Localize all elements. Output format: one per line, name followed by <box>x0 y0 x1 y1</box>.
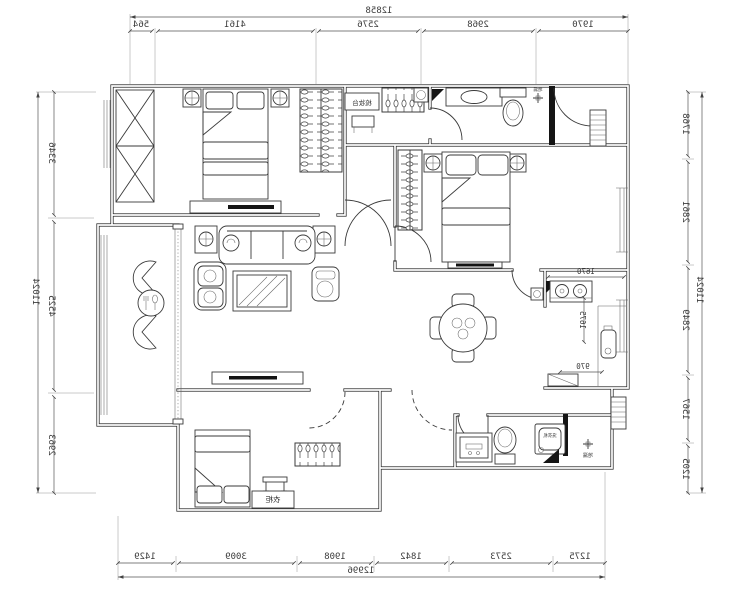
vanity-2 <box>456 433 492 462</box>
dim-right-3: 1567 <box>680 398 690 420</box>
hall-arc-1 <box>345 200 391 246</box>
living-room <box>194 226 339 384</box>
dim-kitchen-depth: 1675 <box>578 311 587 329</box>
bedroom2-window <box>616 188 628 252</box>
dim-bottom-0: 1429 <box>134 552 156 562</box>
radiator-entry <box>590 110 606 146</box>
cabinet-small <box>414 88 428 102</box>
floor-drain-bottom: 地漏 <box>583 439 593 459</box>
fan-chair <box>133 315 156 349</box>
bedroom2-door-arc <box>395 226 431 262</box>
tv-bedroom2 <box>456 264 494 267</box>
dim-right-2: 2849 <box>680 309 690 331</box>
tv <box>229 376 277 380</box>
dim-bottom-1: 3009 <box>225 552 247 562</box>
floor-plan-canvas: 12858 564 4161 2576 2968 1970 12996 1429… <box>0 0 740 592</box>
svg-text:地漏: 地漏 <box>583 452 593 459</box>
dresser-label: 梳妆台 <box>352 98 372 107</box>
dim-right-4: 1205 <box>680 458 690 480</box>
wardrobe-label: 衣柜 <box>265 494 280 504</box>
kitchen-sink <box>601 326 616 358</box>
corner-marker <box>432 89 444 101</box>
tv-bedroom1 <box>228 205 274 209</box>
dim-left-total: 11024 <box>30 278 40 305</box>
sink-small <box>531 288 543 300</box>
balcony <box>133 261 164 349</box>
dim-top-4: 1970 <box>572 20 594 30</box>
dim-kitchen-width: 1670 <box>576 267 595 276</box>
hall-arc-2 <box>345 200 391 246</box>
dim-left-2: 2963 <box>46 434 56 456</box>
radiator-utility <box>611 397 626 429</box>
sofa-3seat <box>219 226 315 264</box>
toilet-2 <box>494 427 516 464</box>
bed-bedroom2 <box>442 152 510 262</box>
bed-master <box>203 89 268 199</box>
corridor-door-arc <box>412 390 452 430</box>
dim-bottom-total: 12996 <box>347 566 374 576</box>
dim-left-1: 4525 <box>46 295 56 317</box>
dim-right-total: 11024 <box>694 276 704 303</box>
floor-drain-top: 地漏 <box>533 86 543 103</box>
solid-wall-entry <box>549 86 555 145</box>
bedroom3: 衣柜 <box>195 430 340 508</box>
dim-bottom-3: 1842 <box>400 552 422 562</box>
bedroom1 <box>116 89 342 213</box>
coffee-table <box>233 271 291 311</box>
balcony-sliding-door <box>173 224 183 424</box>
dim-top-1: 4161 <box>224 20 246 30</box>
balcony-table <box>138 290 164 316</box>
floor-plan-drawing: 12858 564 4161 2576 2968 1970 12996 1429… <box>0 0 740 592</box>
washing-machine: 洗衣机 <box>535 424 565 454</box>
dim-top-3: 2968 <box>467 20 489 30</box>
closet-hangers-bedroom3 <box>295 443 340 466</box>
bedroom3-door-arc <box>309 392 345 428</box>
dim-left-0: 3346 <box>46 142 56 164</box>
bed-bedroom3 <box>195 430 250 507</box>
bedroom1-window <box>104 100 110 168</box>
entry-door-arc <box>554 88 592 126</box>
closet-hangers-bedroom2 <box>398 150 422 230</box>
svg-text:地漏: 地漏 <box>533 86 542 93</box>
bathroom2: 洗衣机 地漏 <box>456 397 626 464</box>
balcony-window <box>101 235 107 415</box>
bathroom1: 地漏 <box>432 86 606 146</box>
dining-set <box>430 294 496 362</box>
dim-top-2: 2576 <box>357 20 379 30</box>
dim-top-0: 564 <box>133 20 149 30</box>
kitchen-window <box>616 300 628 352</box>
dim-bottom-4: 2573 <box>490 552 512 562</box>
armchair <box>312 267 339 301</box>
dim-bottom-2: 1908 <box>324 552 346 562</box>
stool <box>263 477 287 491</box>
dining-table <box>439 304 487 352</box>
dim-bottom-5: 1275 <box>569 552 591 562</box>
dim-right-1: 2861 <box>680 201 690 223</box>
bathroom1-door-arc <box>430 108 462 140</box>
dimension-chain-bottom: 12996 1429 3009 1908 1842 2573 1275 <box>118 552 605 577</box>
dresser-stool <box>352 116 374 127</box>
dimension-chain-right: 11024 1768 2861 2849 1567 1205 <box>680 92 704 493</box>
closet-hangers-bedroom1 <box>300 89 342 172</box>
dimension-chain-left: 11024 3346 4525 2963 <box>30 92 56 493</box>
dim-kitchen-pass: 970 <box>576 362 590 371</box>
stove <box>550 281 592 302</box>
dressing-area: 梳妆台 <box>345 88 428 133</box>
loveseat <box>194 262 226 310</box>
washer-label: 洗衣机 <box>543 432 557 439</box>
dim-top-total: 12858 <box>365 6 392 16</box>
bedroom2 <box>398 150 526 268</box>
dim-right-0: 1768 <box>680 113 690 135</box>
dimension-chain-top: 12858 564 4161 2576 2968 1970 <box>130 6 628 31</box>
toilet-1 <box>500 88 526 126</box>
